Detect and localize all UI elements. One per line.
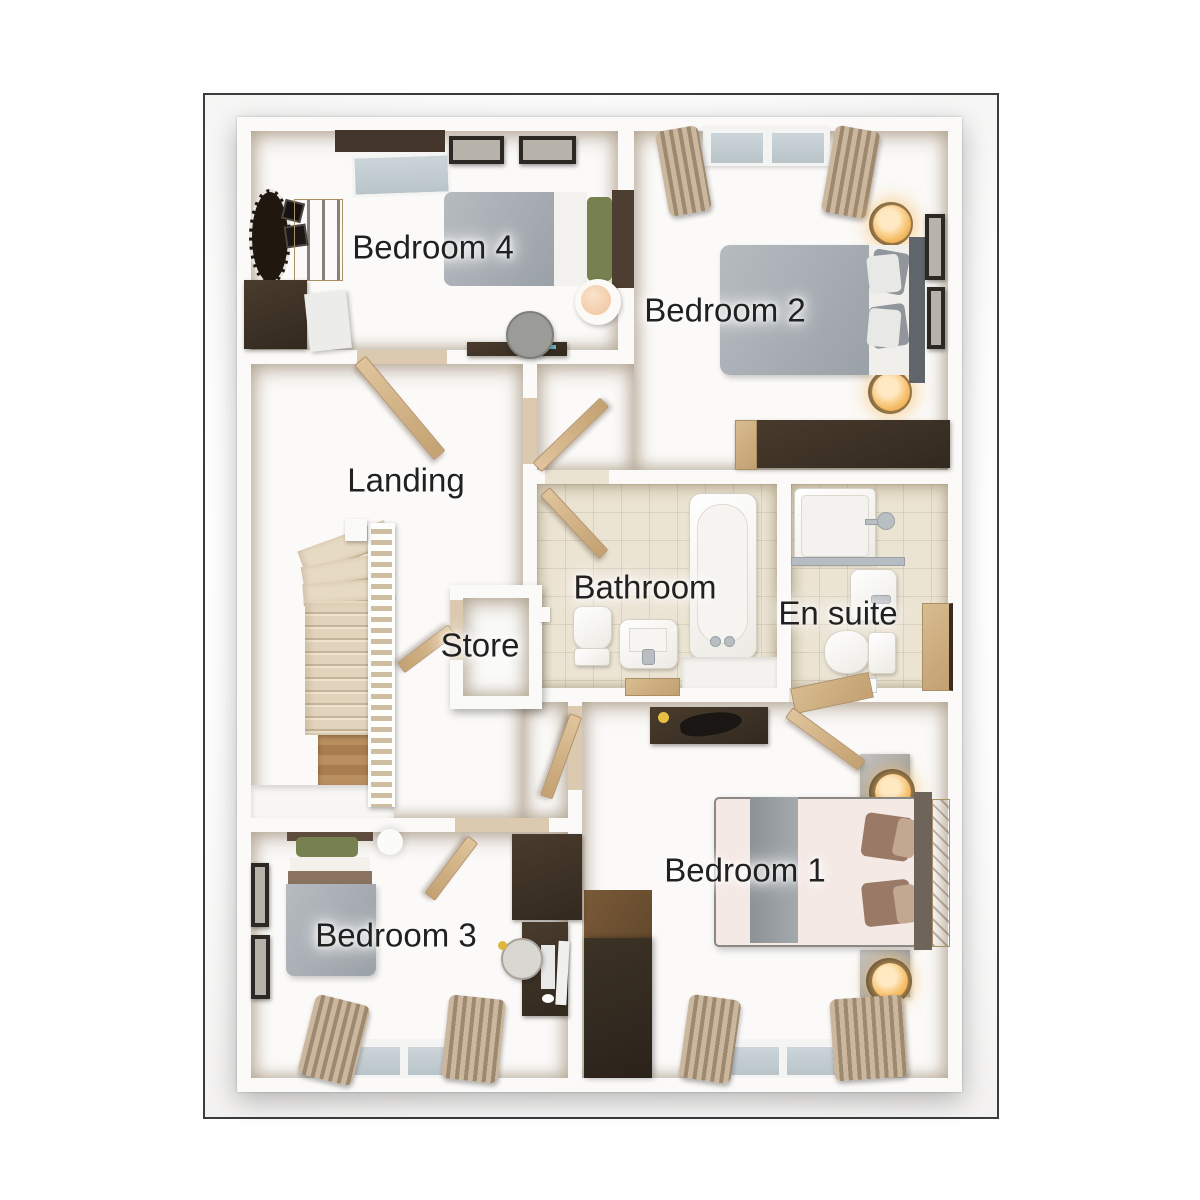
bed-headboard [909, 237, 925, 383]
computer-mouse [542, 994, 554, 1003]
single-bed-sheet [554, 192, 587, 286]
room-label-bedroom-3: Bedroom 3 [315, 919, 476, 952]
room-label-bedroom-4: Bedroom 4 [352, 231, 513, 264]
wardrobe [294, 199, 343, 281]
single-bed-sheet [290, 857, 370, 872]
room-label-store: Store [441, 629, 520, 662]
bed-headboard [914, 792, 932, 950]
bath-end-panel [682, 657, 777, 688]
wall-cabinet [922, 603, 953, 691]
low-dresser [735, 420, 950, 468]
stair-newel-post [345, 519, 367, 541]
bath-tap [724, 636, 735, 647]
skylight-window [351, 152, 451, 197]
picture-frame [251, 935, 270, 999]
picture-frame [927, 287, 945, 349]
white-pillow [866, 308, 901, 349]
bed-blanket-band [288, 871, 372, 884]
bed-headboard [612, 190, 634, 288]
desk-lamp [658, 712, 669, 723]
chest-of-drawers [244, 280, 307, 349]
shower-head [877, 512, 895, 530]
toilet-cistern [574, 648, 610, 666]
green-pillow [587, 197, 612, 281]
floorplan-frame: Bedroom 4 Bedroom 2 Landing Store Bathro… [203, 93, 999, 1119]
curtain [829, 995, 909, 1082]
bath-tap [710, 636, 721, 647]
wardrobe [584, 938, 652, 1078]
skylight-beam [335, 130, 445, 152]
picture-frame [251, 863, 269, 927]
desk-chair [501, 938, 543, 980]
bath-mat [625, 678, 680, 696]
desk-chair [506, 311, 554, 359]
curtain [441, 994, 506, 1083]
window [769, 130, 827, 166]
picture-frame [449, 136, 504, 164]
white-pillow [866, 253, 902, 294]
bedside-lamp [872, 963, 908, 999]
green-pillow [296, 837, 358, 857]
room-label-bedroom-2: Bedroom 2 [644, 294, 805, 327]
bedside-lamp [872, 373, 910, 411]
cabinet-white-front [304, 290, 352, 352]
chair-accent [498, 941, 507, 950]
shower-tray-inner [801, 495, 869, 557]
bedside-lamp [873, 205, 911, 243]
shower-glass-rail [791, 557, 905, 566]
toilet-roll-holder [539, 607, 550, 622]
room-label-bathroom: Bathroom [573, 571, 716, 604]
ensuite-toilet-bowl [824, 630, 870, 674]
room-label-landing: Landing [347, 464, 464, 497]
dresser-end-panel [735, 420, 757, 470]
headboard-wood-panel [932, 799, 950, 947]
wardrobe [512, 834, 582, 920]
ceiling-light [377, 829, 403, 855]
room-label-en-suite: En suite [778, 597, 897, 630]
ensuite-toilet-cistern [868, 632, 896, 674]
room-label-bedroom-1: Bedroom 1 [664, 854, 825, 887]
picture-frame [519, 136, 576, 164]
window [708, 130, 766, 166]
paper-lantern-lamp [581, 285, 611, 315]
bedroom-2-door-opening [523, 398, 537, 464]
sink-tap [642, 649, 655, 665]
bathroom-door-opening [545, 470, 609, 484]
bedroom-3-door-opening [455, 818, 549, 832]
stair-railing [368, 523, 395, 807]
picture-frame [925, 214, 945, 280]
floorplan-image: Bedroom 4 Bedroom 2 Landing Store Bathro… [0, 0, 1200, 1200]
keyboard [541, 945, 555, 989]
wardrobe-top [584, 890, 652, 938]
window [784, 1044, 840, 1078]
toilet [573, 606, 612, 650]
